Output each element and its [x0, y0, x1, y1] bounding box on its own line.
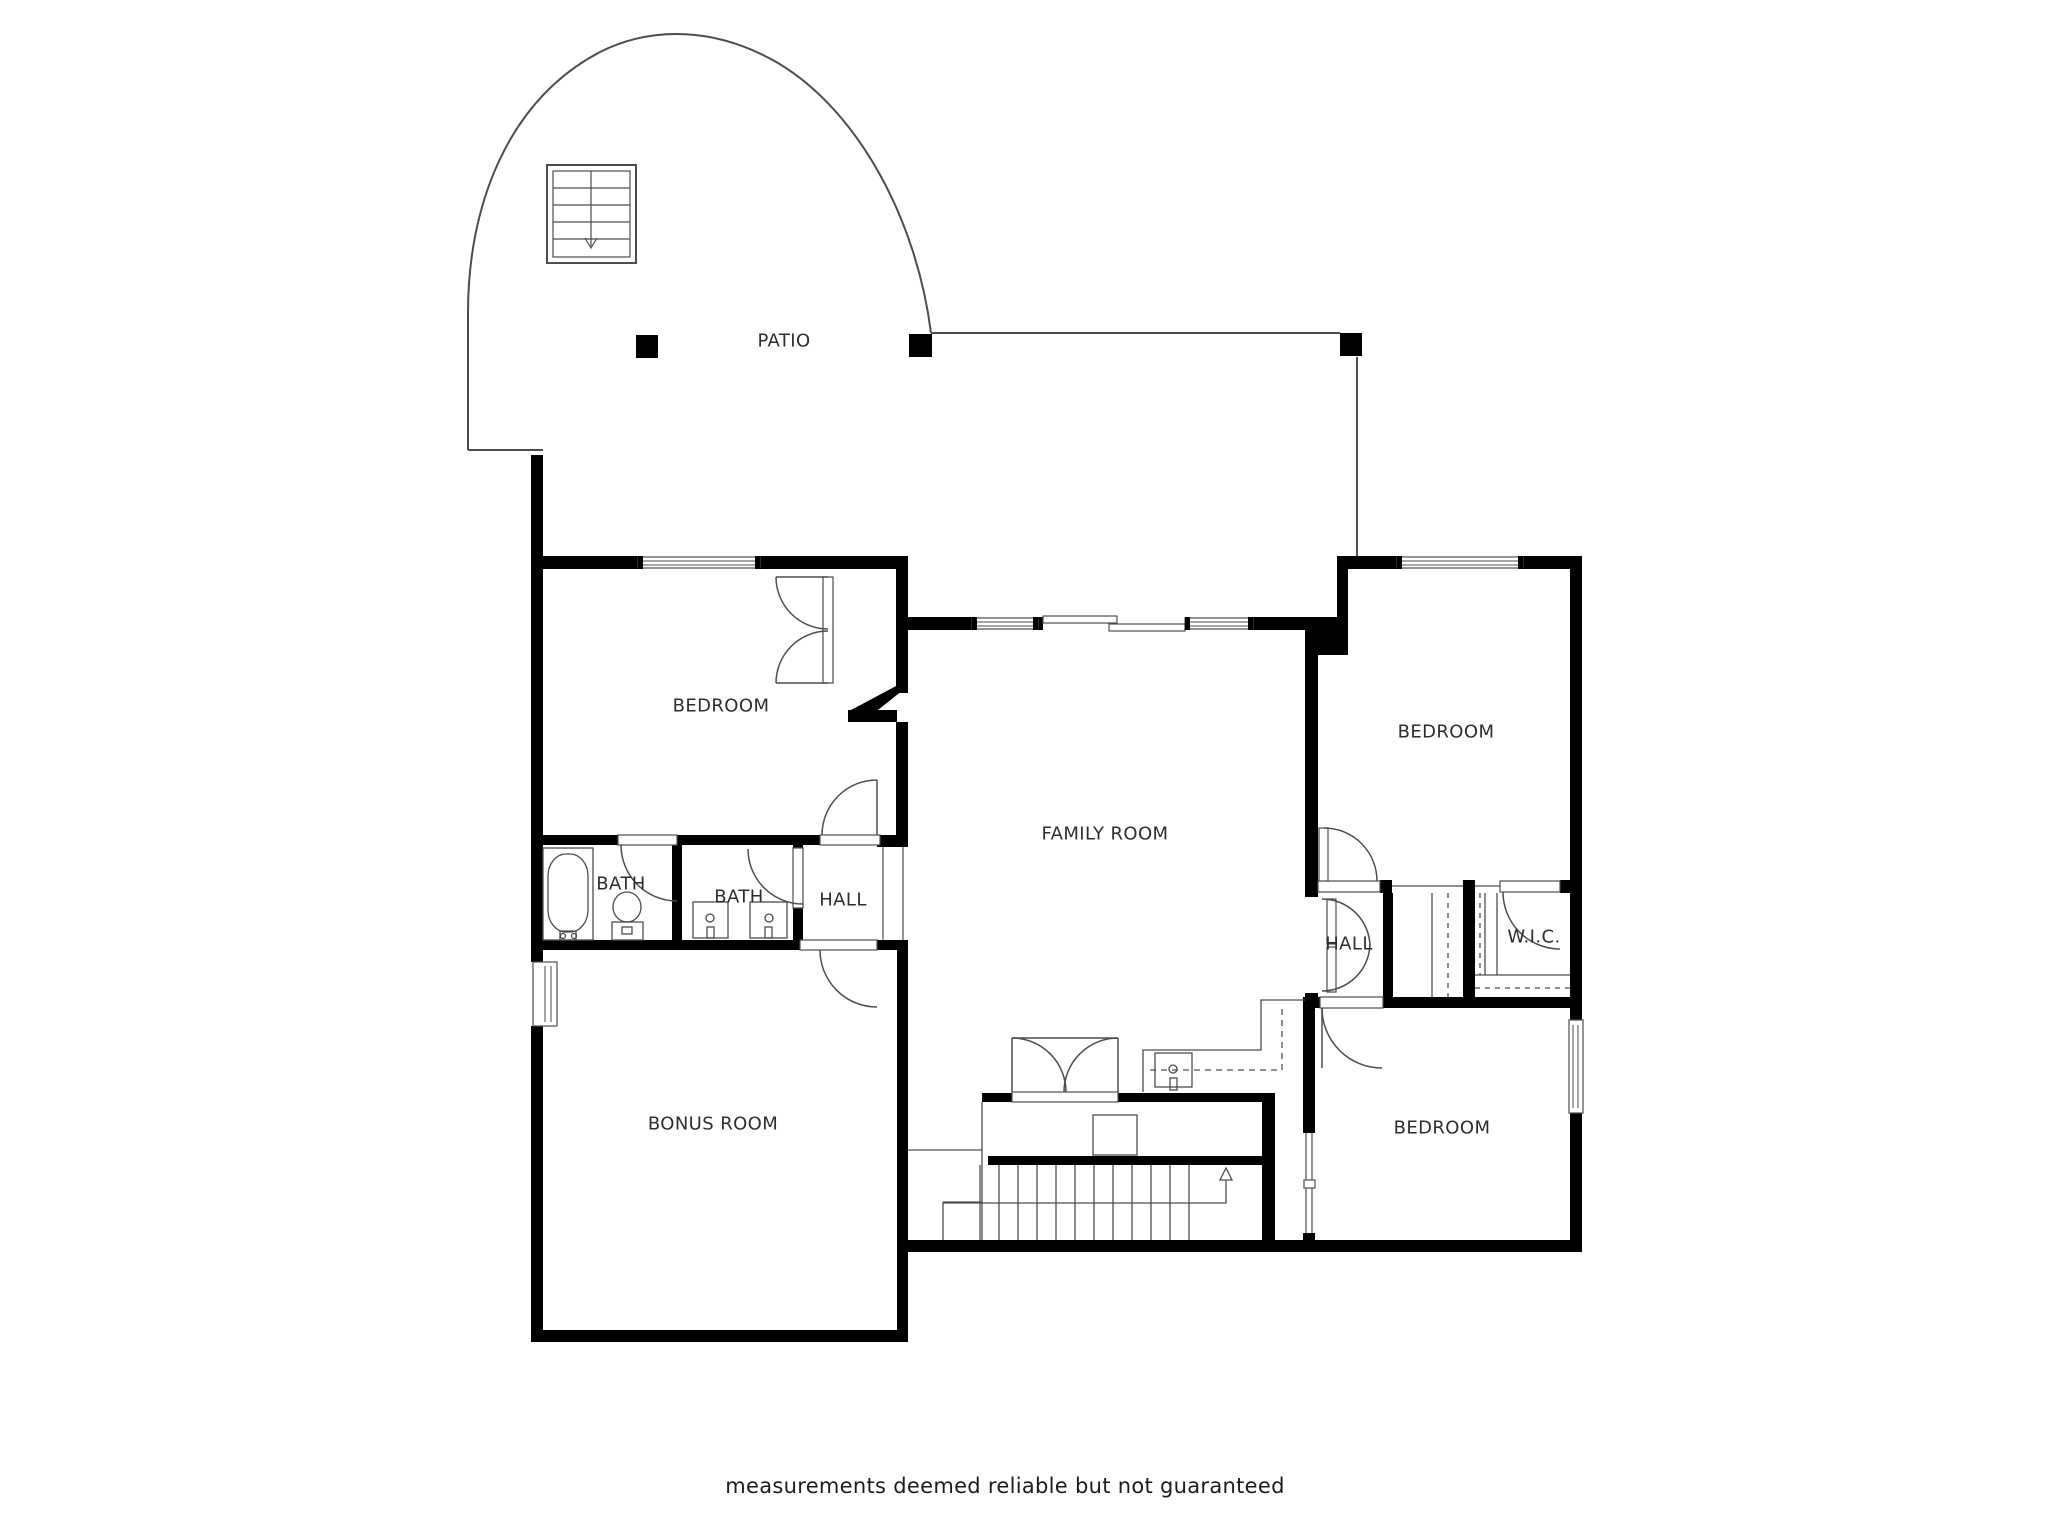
sliding-door-family-room [1043, 616, 1185, 631]
window-bedroom-top-right [1397, 556, 1523, 569]
opening-bedroom-top-right [1318, 881, 1380, 892]
room-label-wic: W.I.C. [1507, 927, 1560, 948]
opening-bedroom-top-left [820, 835, 880, 845]
patio-stairs-icon [547, 165, 636, 263]
room-label-bath-2: BATH [714, 887, 763, 908]
patio-column [909, 334, 932, 357]
patio-columns [636, 333, 1362, 358]
room-label-hall-right: HALL [1325, 934, 1373, 955]
patio-column [636, 335, 658, 358]
closet-double-doors-bedroom-top-left [776, 577, 833, 683]
room-label-hall-left: HALL [819, 890, 867, 911]
bathtub [543, 848, 593, 940]
window-family-room-left [972, 617, 1038, 630]
window-bedroom-bottom-right [1569, 1020, 1583, 1113]
stairs-main [908, 1102, 1232, 1240]
room-label-family-room: FAMILY ROOM [1042, 824, 1169, 845]
room-label-bedroom-bottom-right: BEDROOM [1394, 1118, 1491, 1139]
window-bedroom-top-left [638, 556, 760, 569]
opening-bath1 [618, 835, 677, 845]
opening-bedroom-bottom-right [1320, 997, 1383, 1008]
room-label-bedroom-top-right: BEDROOM [1398, 722, 1495, 743]
patio-column [1340, 333, 1362, 356]
door-arc-bonus-room [820, 950, 877, 1007]
floor-plan-page: PATIO BEDROOM BATH BATH HALL FAMILY ROOM… [0, 0, 2048, 1536]
disclaimer-text: measurements deemed reliable but not gua… [725, 1474, 1285, 1498]
stair-winders [908, 1102, 982, 1240]
door-bedroom-bottom-right [1322, 1008, 1382, 1068]
stair-doorway-threshold [1012, 1092, 1118, 1102]
window-bonus-room [533, 962, 557, 1026]
bar-sink [1155, 1053, 1192, 1090]
opening-bath2 [793, 848, 803, 908]
double-doors-stairs [1012, 1038, 1118, 1092]
door-bedroom-top-left [822, 780, 877, 835]
stair-landing-box [1093, 1115, 1137, 1155]
opening-wic [1500, 881, 1560, 892]
wet-bar-counter [1143, 1000, 1305, 1092]
patio-curved-edge [468, 34, 931, 450]
opening-bonus-room [800, 940, 877, 950]
window-family-room-right [1185, 617, 1253, 630]
room-label-bath-1: BATH [596, 874, 645, 895]
toilet [612, 892, 643, 940]
room-label-bedroom-top-left: BEDROOM [673, 696, 770, 717]
patio-outline [468, 34, 1357, 556]
room-label-bonus-room: BONUS ROOM [648, 1114, 778, 1135]
room-label-patio: PATIO [757, 331, 810, 352]
door-bedroom-top-right [1319, 828, 1377, 881]
floor-plan-drawing [0, 0, 2048, 1536]
